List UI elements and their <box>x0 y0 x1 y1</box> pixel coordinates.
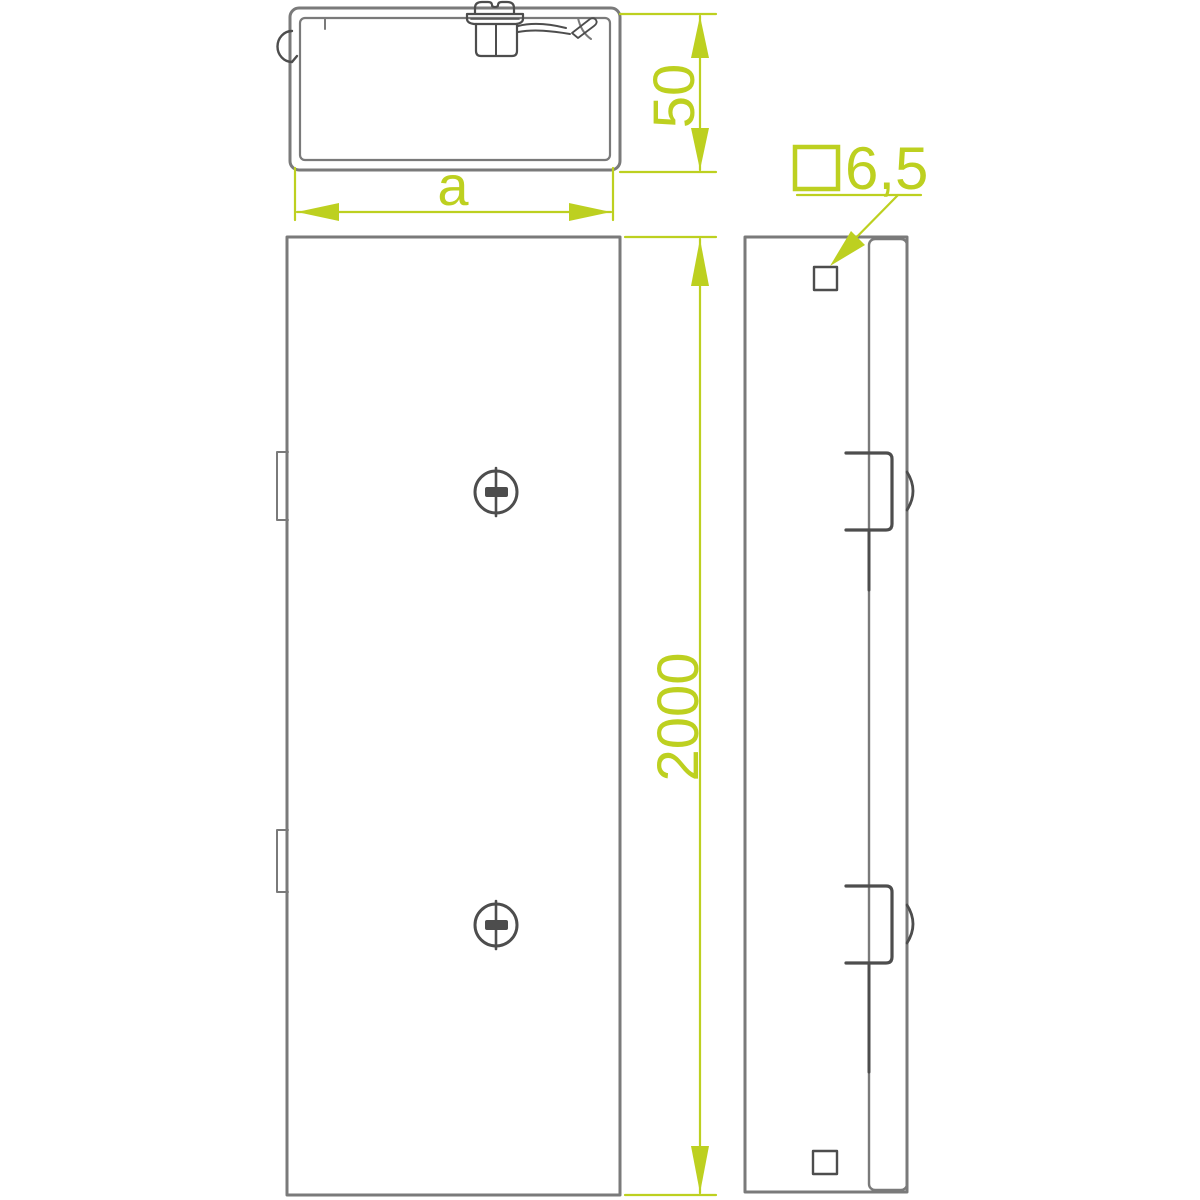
arrowhead-left-icon <box>297 203 339 221</box>
cross-section-inner-profile <box>300 18 610 160</box>
dimension-50: 50 <box>620 14 716 172</box>
dimension-2000: 2000 <box>625 237 716 1195</box>
dimension-50-label: 50 <box>642 64 707 129</box>
arrowhead-right-icon <box>569 203 611 221</box>
dimension-a-label: a <box>437 154 469 217</box>
front-panel <box>287 237 620 1195</box>
drawing-svg: 50 a <box>0 0 1200 1200</box>
latch-hook <box>572 18 597 38</box>
front-view <box>277 237 620 1195</box>
hole-size-label: 6,5 <box>845 135 928 202</box>
side-body <box>745 237 907 1192</box>
latch-arm-upper <box>518 24 566 28</box>
cross-section-outer-profile <box>290 8 620 170</box>
turnbuckle-fastener <box>467 2 597 56</box>
dimension-2000-label: 2000 <box>646 652 711 781</box>
arrowhead-down-icon <box>691 128 709 170</box>
screw-wing <box>485 487 508 497</box>
hinge-bead <box>278 31 298 62</box>
arrowhead-up-icon <box>691 239 709 286</box>
square-symbol-icon <box>795 147 838 189</box>
arrowhead-down-icon <box>691 1146 709 1193</box>
latch-arm-lower <box>518 31 570 34</box>
technical-drawing-canvas: 50 a <box>0 0 1200 1200</box>
cross-section-view <box>278 2 621 170</box>
dimension-a: a <box>295 154 613 221</box>
screw-wing <box>485 920 508 930</box>
arrowhead-up-icon <box>691 16 709 58</box>
side-view <box>745 237 913 1192</box>
